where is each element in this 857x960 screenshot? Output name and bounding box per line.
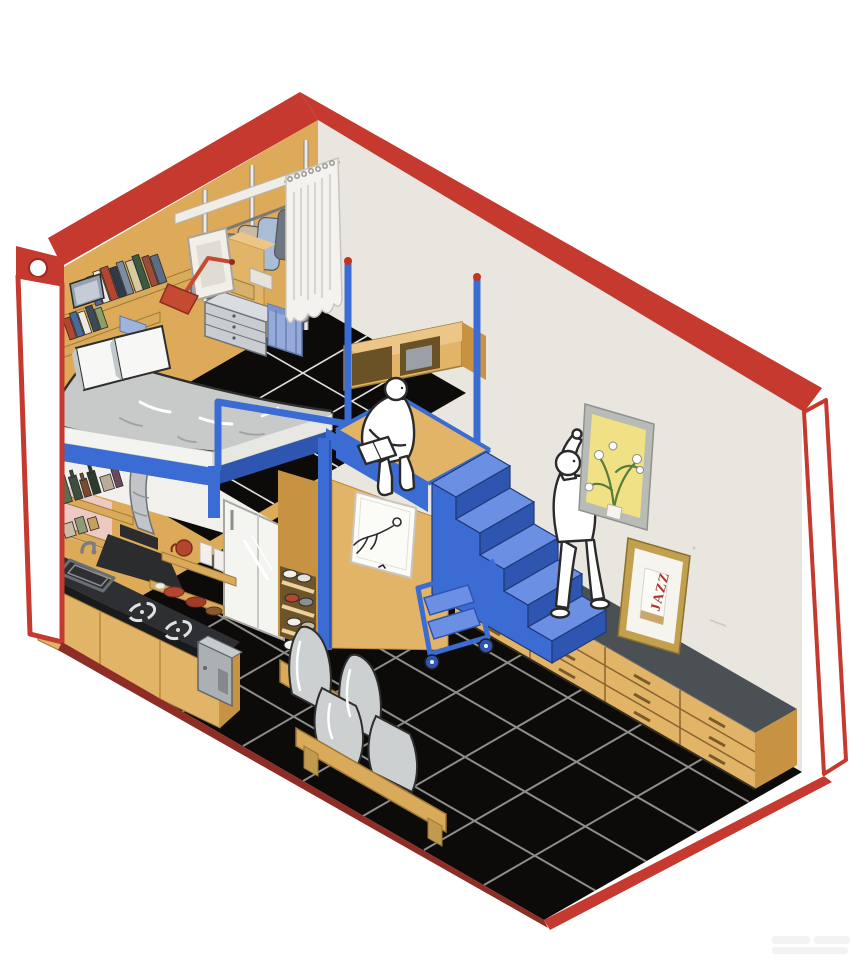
pole-red-tip <box>473 273 481 281</box>
dangling-foot <box>378 458 392 495</box>
frame-hole <box>29 259 47 277</box>
frame-left-spine <box>18 276 62 642</box>
curtain <box>284 158 342 323</box>
pole-red-tip <box>344 257 352 265</box>
illustration-stage: JAZZ <box>0 0 857 960</box>
leaning-frame <box>188 228 234 300</box>
room-illustration: JAZZ <box>0 0 857 960</box>
frame-right-spine <box>804 400 846 774</box>
poster <box>351 492 416 578</box>
flower-artwork <box>579 404 654 530</box>
wall-mark <box>693 547 696 550</box>
watermark <box>772 936 850 954</box>
loft-frame-post <box>208 466 220 518</box>
jazz-artwork: JAZZ <box>618 538 690 654</box>
